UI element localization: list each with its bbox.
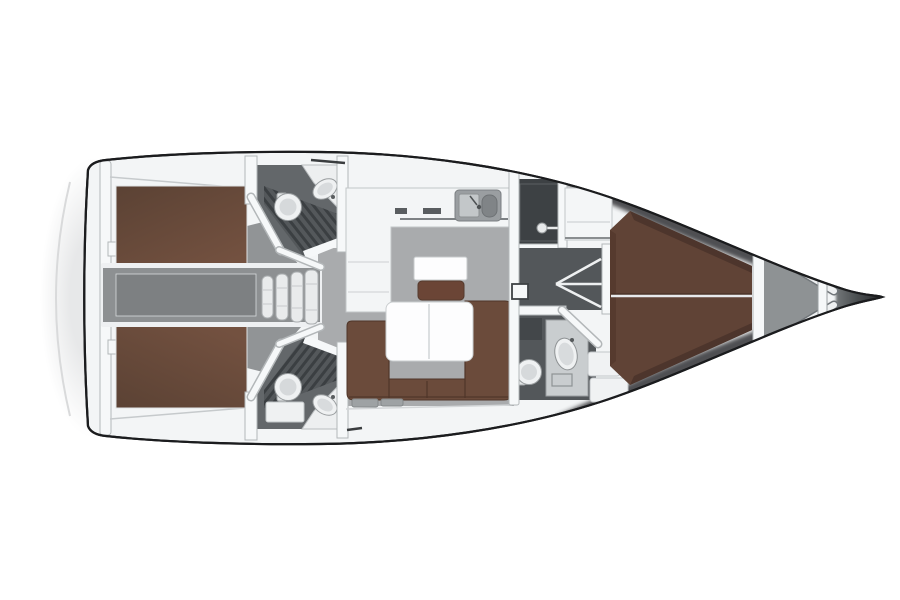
toilet-icon: [275, 374, 302, 402]
bow-chevron-bulkhead: [818, 258, 827, 338]
stove-icon: [423, 208, 441, 214]
instrument-panel: [512, 284, 528, 299]
cabinet: [516, 318, 542, 340]
main-bulkhead: [509, 159, 519, 405]
double-berth: [116, 186, 247, 272]
sofa-locker: [352, 399, 378, 407]
toilet-icon: [516, 360, 542, 386]
toilet-icon: [275, 193, 302, 221]
yacht-floorplan: [0, 0, 900, 600]
faucet-icon: [331, 395, 335, 399]
shower-stall: [516, 179, 562, 246]
engine-corridor: [101, 263, 322, 327]
galley-sink-icon: [455, 190, 501, 221]
step-tread: [305, 270, 318, 324]
step-tread: [262, 276, 273, 318]
step-tread: [276, 274, 288, 320]
faucet-icon: [570, 338, 574, 342]
double-berth: [116, 322, 247, 408]
chart-seat: [418, 281, 464, 300]
anchor-locker: [764, 252, 824, 344]
chart-table: [414, 257, 467, 300]
v-berth-edge: [610, 230, 616, 366]
interior: [100, 156, 882, 440]
salon-floor-galley-strip: [390, 226, 514, 252]
shower-bench: [266, 402, 304, 422]
salon-table: [386, 302, 473, 361]
faucet-icon: [331, 195, 335, 199]
engine-hatch: [116, 274, 256, 316]
chart-table-top: [414, 257, 467, 280]
bulkhead: [337, 342, 348, 438]
bow: [753, 236, 882, 358]
stove-icon: [395, 208, 407, 214]
sofa-locker: [381, 399, 403, 406]
step-tread: [291, 272, 303, 322]
faucet-icon: [477, 205, 481, 209]
